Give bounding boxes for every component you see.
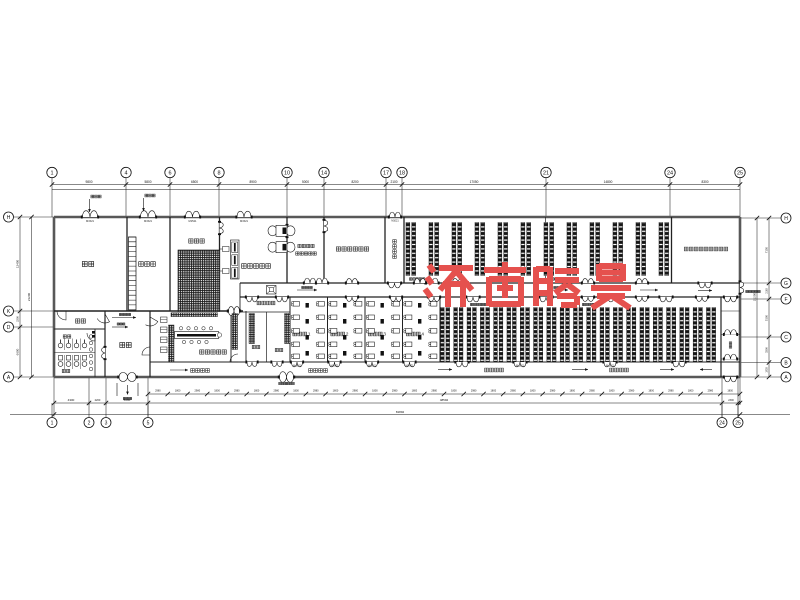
svg-text:1800: 1800	[491, 390, 497, 393]
svg-text:10: 10	[284, 171, 290, 177]
svg-text:5000: 5000	[302, 180, 309, 184]
svg-text:F: F	[784, 297, 787, 303]
svg-text:1800: 1800	[175, 390, 181, 393]
svg-text:M1521: M1521	[86, 219, 94, 223]
svg-text:5100: 5100	[765, 314, 769, 321]
svg-text:12400: 12400	[16, 259, 20, 268]
svg-text:2300: 2300	[728, 399, 734, 402]
svg-text:1800: 1800	[688, 390, 694, 393]
svg-text:2980: 2980	[708, 390, 714, 393]
svg-text:2980: 2980	[668, 390, 674, 393]
svg-text:2: 2	[88, 420, 91, 426]
svg-text:24: 24	[719, 420, 725, 426]
svg-text:M-0921: M-0921	[293, 366, 302, 368]
svg-text:4300: 4300	[68, 398, 75, 402]
svg-text:2980: 2980	[234, 390, 240, 393]
svg-text:81892: 81892	[396, 410, 405, 414]
svg-text:1800: 1800	[254, 390, 260, 393]
svg-text:3: 3	[105, 420, 108, 426]
svg-text:2980: 2980	[510, 390, 516, 393]
svg-text:9800: 9800	[85, 180, 92, 184]
svg-text:1800: 1800	[451, 390, 457, 393]
svg-text:17: 17	[383, 171, 389, 177]
svg-text:M1521: M1521	[144, 219, 152, 223]
svg-text:21200: 21200	[753, 292, 757, 301]
svg-text:1900: 1900	[766, 367, 769, 373]
svg-text:2160: 2160	[766, 288, 769, 294]
svg-text:5800: 5800	[144, 180, 151, 184]
svg-text:2980: 2980	[313, 390, 319, 393]
svg-text:25: 25	[735, 420, 741, 426]
svg-text:M-1821: M-1821	[516, 366, 525, 368]
svg-text:H: H	[784, 216, 788, 222]
svg-text:1800: 1800	[372, 390, 378, 393]
svg-text:2980: 2980	[352, 390, 358, 393]
svg-text:8: 8	[217, 171, 220, 177]
svg-text:M-0921: M-0921	[331, 366, 340, 368]
svg-text:2980: 2980	[550, 390, 556, 393]
svg-text:M-0921: M-0921	[368, 366, 377, 368]
svg-text:2980: 2980	[629, 390, 635, 393]
svg-text:4: 4	[421, 331, 424, 336]
svg-text:H: H	[7, 215, 11, 221]
svg-text:6600: 6600	[16, 348, 20, 355]
svg-text:14800: 14800	[604, 180, 613, 184]
svg-text:2200: 2200	[16, 316, 20, 322]
svg-text:2980: 2980	[195, 390, 201, 393]
svg-text:18: 18	[399, 171, 405, 177]
svg-text:48592: 48592	[440, 398, 449, 402]
svg-text:7150: 7150	[765, 246, 769, 253]
svg-text:1: 1	[51, 420, 54, 426]
svg-text:2980: 2980	[589, 390, 595, 393]
svg-text:C: C	[784, 335, 788, 341]
svg-text:1800: 1800	[609, 390, 615, 393]
svg-text:1800: 1800	[293, 390, 299, 393]
svg-text:2980: 2980	[471, 390, 477, 393]
svg-text:M1021: M1021	[391, 220, 399, 223]
svg-text:2980: 2980	[155, 390, 161, 393]
svg-text:6: 6	[168, 171, 171, 177]
svg-text:1800: 1800	[648, 390, 654, 393]
svg-text:21200: 21200	[27, 292, 31, 301]
svg-text:17050: 17050	[470, 180, 479, 184]
svg-text:25: 25	[737, 171, 743, 177]
svg-text:2100: 2100	[390, 180, 397, 184]
svg-text:1800: 1800	[333, 390, 339, 393]
svg-text:M1521: M1521	[189, 219, 197, 223]
svg-text:21: 21	[543, 171, 549, 177]
svg-text:4: 4	[124, 171, 127, 177]
svg-text:24: 24	[667, 171, 673, 177]
svg-text:M-0921: M-0921	[406, 366, 415, 368]
svg-text:M-1821: M-1821	[606, 366, 615, 368]
svg-text:3300: 3300	[765, 347, 769, 353]
svg-text:5: 5	[147, 420, 150, 426]
svg-text:1800: 1800	[214, 390, 220, 393]
svg-text:1800: 1800	[530, 390, 536, 393]
svg-text:8900: 8900	[249, 180, 256, 184]
svg-text:2980: 2980	[431, 390, 437, 393]
svg-text:G: G	[784, 281, 788, 287]
svg-text:D: D	[7, 325, 11, 331]
svg-text:8200: 8200	[351, 180, 358, 184]
svg-text:8300: 8300	[701, 180, 708, 184]
svg-text:1800: 1800	[727, 390, 733, 393]
svg-text:M1521: M1521	[240, 219, 248, 223]
svg-text:6500: 6500	[191, 180, 198, 184]
svg-text:1800: 1800	[412, 390, 418, 393]
svg-text:2980: 2980	[392, 390, 398, 393]
svg-text:1800: 1800	[569, 390, 575, 393]
svg-text:2200: 2200	[95, 398, 101, 402]
svg-text:1: 1	[50, 171, 53, 177]
svg-text:14: 14	[321, 171, 327, 177]
svg-text:2980: 2980	[273, 390, 279, 393]
